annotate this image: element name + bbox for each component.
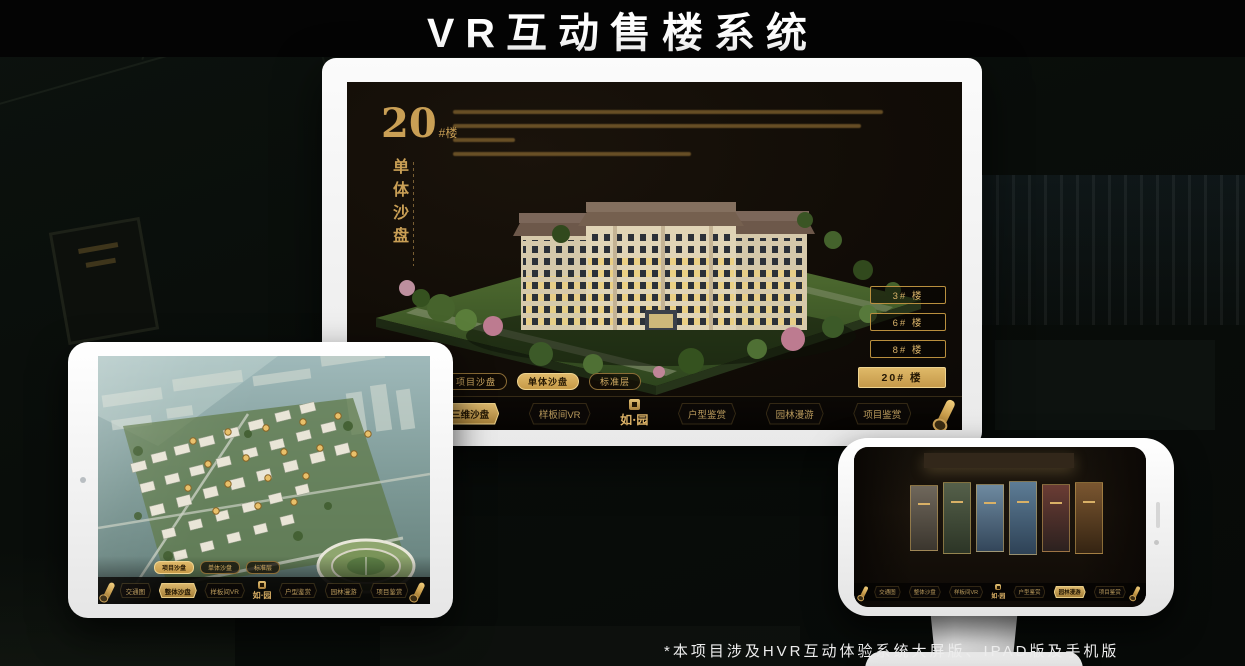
nav-item-garden-roam[interactable]: 园林漫游 <box>766 403 824 425</box>
scene-card[interactable] <box>910 485 938 551</box>
floor-button-3[interactable]: 3# 楼 <box>870 286 946 304</box>
floor-button-8[interactable]: 8# 楼 <box>870 340 946 358</box>
scene-card[interactable] <box>943 482 971 554</box>
nav-item-project-gallery[interactable]: 项目鉴赏 <box>853 403 911 425</box>
floor-button-6[interactable]: 6# 楼 <box>870 313 946 331</box>
nav-item-project-gallery[interactable]: 项目鉴赏 <box>1094 586 1126 598</box>
phone-screen: 交通图 整体沙盘 样板间VR 如·园 户型鉴赏 园林漫游 项目鉴赏 <box>854 447 1146 607</box>
scroll-menu-icon[interactable] <box>859 585 868 598</box>
tab-single-sandbox[interactable]: 单体沙盘 <box>517 373 579 390</box>
nav-item-unit-gallery[interactable]: 户型鉴赏 <box>678 403 736 425</box>
scene-card[interactable] <box>976 484 1004 552</box>
nav-item-traffic[interactable]: 交通图 <box>874 586 901 598</box>
nav-item-overall-sandbox[interactable]: 整体沙盘 <box>909 586 941 598</box>
brand-logo: 如·园 <box>620 399 648 428</box>
title-band: VR互动售楼系统 <box>0 0 1245 57</box>
background-building-texture <box>995 340 1215 430</box>
promo-composite: VR互动售楼系统 20#楼 单体沙盘 <box>0 0 1245 666</box>
scene-card[interactable] <box>1042 484 1070 552</box>
building-heading: 20#楼 <box>381 100 457 147</box>
phone-navigation-bar: 交通图 整体沙盘 样板间VR 如·园 户型鉴赏 园林漫游 项目鉴赏 <box>854 583 1146 601</box>
screen-glare <box>98 356 430 604</box>
scene-card[interactable] <box>1009 481 1037 555</box>
camera-icon <box>1154 540 1159 545</box>
nav-item-unit-gallery[interactable]: 户型鉴赏 <box>1013 586 1045 598</box>
nav-item-showroom-vr[interactable]: 样板间VR <box>529 403 591 425</box>
tab-standard-floor[interactable]: 标准层 <box>589 373 641 390</box>
scene-card-strip <box>910 481 1103 555</box>
seal-icon <box>629 399 640 410</box>
phone-device: 交通图 整体沙盘 样板间VR 如·园 户型鉴赏 园林漫游 项目鉴赏 <box>838 438 1174 616</box>
building-number: 20 <box>381 100 437 147</box>
nav-item-showroom-vr[interactable]: 样板间VR <box>949 586 983 598</box>
brand-logo: 如·园 <box>991 584 1005 600</box>
scene-card[interactable] <box>1075 482 1103 554</box>
floor-button-group: 3# 楼 6# 楼 8# 楼 20# 楼 <box>858 286 946 388</box>
floor-button-20[interactable]: 20# 楼 <box>858 367 946 388</box>
ipad-screen: 项目沙盘 单体沙盘 标准层 交通图 整体沙盘 样板间VR 如·园 户型鉴赏 园林… <box>98 356 430 604</box>
seal-icon <box>995 584 1001 590</box>
page-title: VR互动售楼系统 <box>427 0 818 59</box>
ipad-device: 项目沙盘 单体沙盘 标准层 交通图 整体沙盘 样板间VR 如·园 户型鉴赏 园林… <box>68 342 453 618</box>
scroll-menu-icon[interactable] <box>1131 585 1140 598</box>
interior-ceiling-light <box>924 453 1074 468</box>
background-building-texture <box>980 175 1245 325</box>
footnote-caption: *本项目涉及HVR互动体验系统大屏版、IPAD版及手机版 <box>664 640 1119 661</box>
camera-icon <box>80 477 86 483</box>
speaker-slit-icon <box>1156 502 1160 528</box>
background-certificate-frame <box>49 217 159 345</box>
sandbox-tab-group: 项目沙盘 单体沙盘 标准层 <box>445 373 641 390</box>
scroll-menu-icon[interactable] <box>935 398 956 429</box>
tab-project-sandbox[interactable]: 项目沙盘 <box>445 373 507 390</box>
nav-item-garden-roam[interactable]: 园林漫游 <box>1054 586 1086 598</box>
